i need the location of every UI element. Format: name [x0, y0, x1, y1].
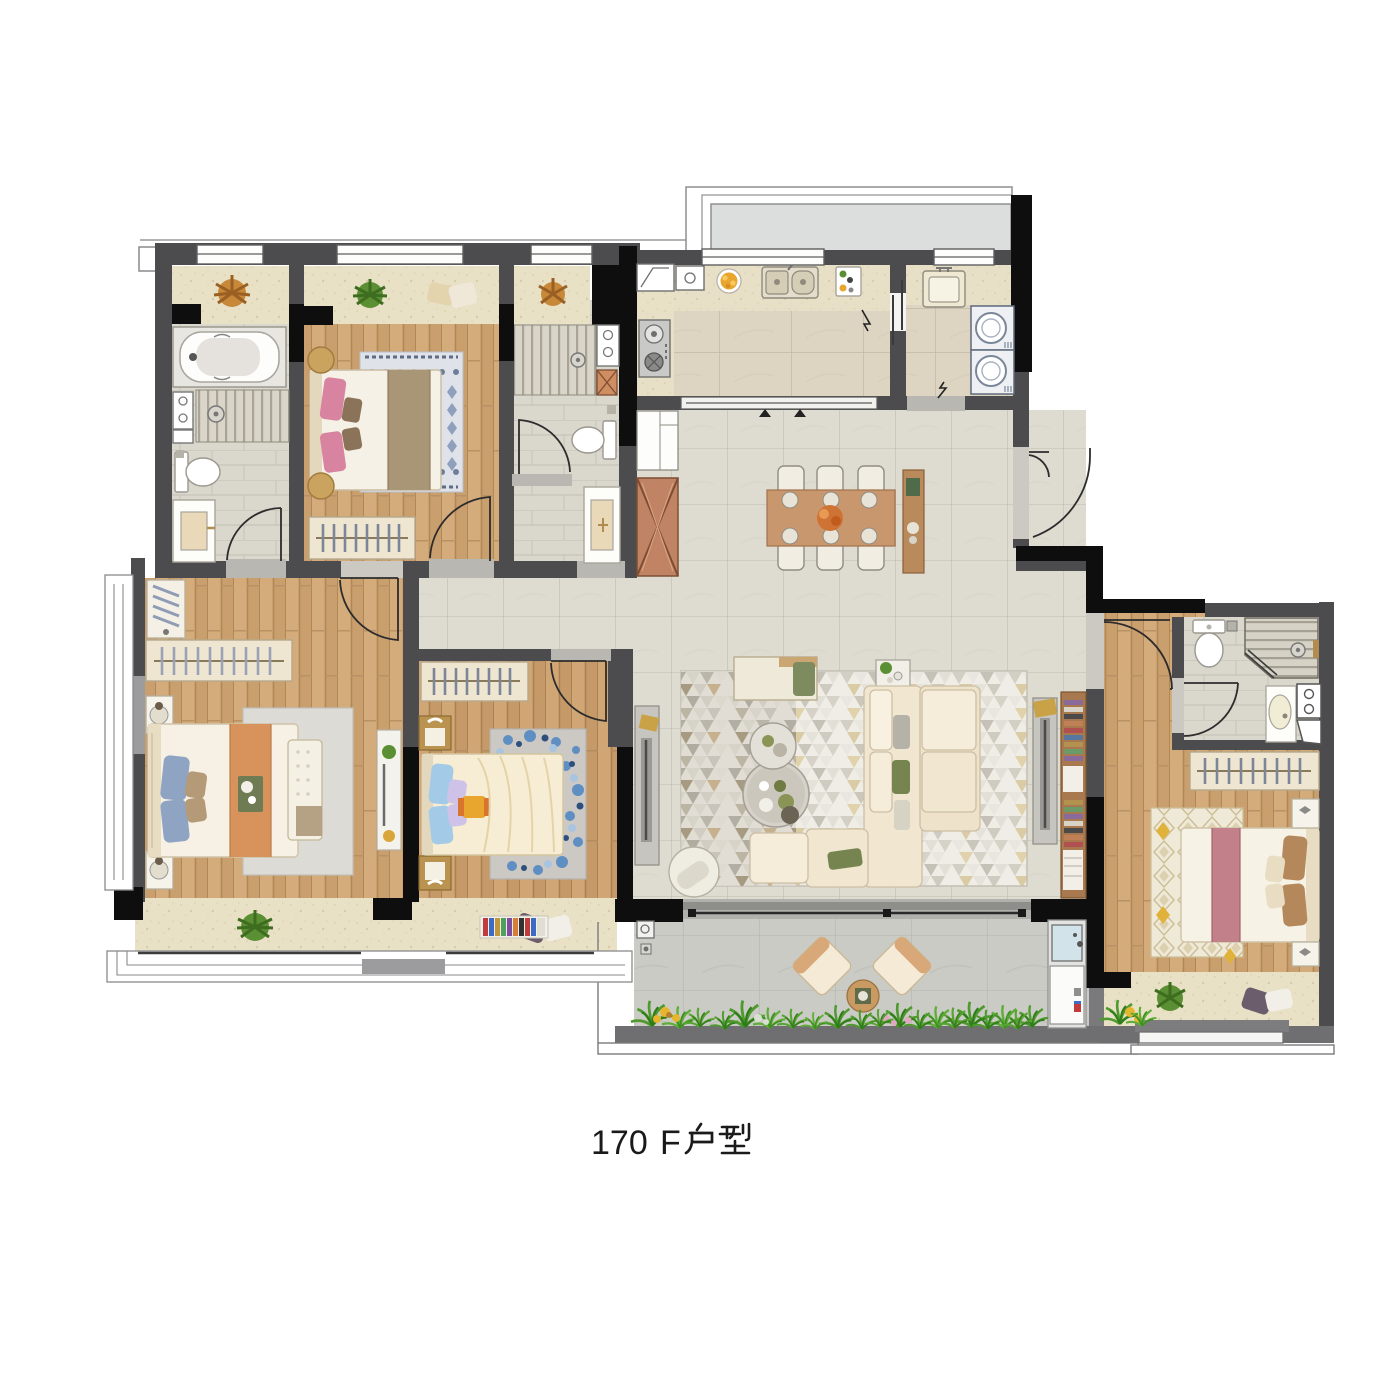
- svg-text:170: 170: [591, 1124, 648, 1162]
- svg-text:F: F: [660, 1124, 681, 1162]
